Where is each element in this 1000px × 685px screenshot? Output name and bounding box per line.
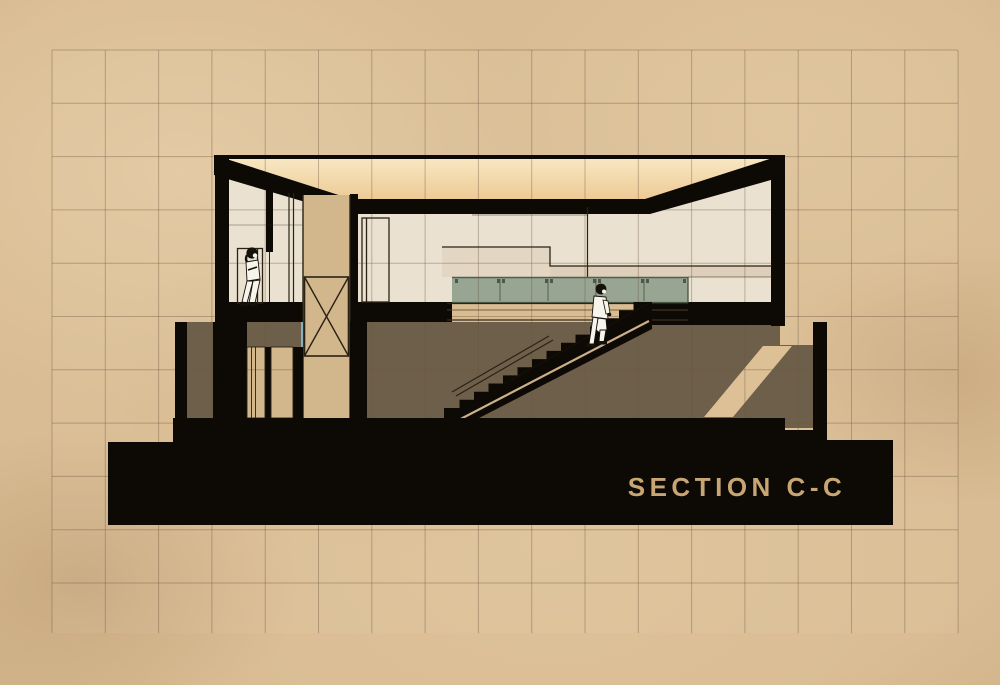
freestanding-column	[813, 322, 827, 443]
left-exterior-wall	[215, 157, 229, 322]
floor-slab-right	[640, 302, 785, 325]
section-title: SECTION C-C	[628, 472, 847, 502]
right-exterior-wall	[771, 156, 785, 326]
pilaster-1	[247, 347, 265, 418]
roof-top-line	[214, 155, 785, 159]
reception-counter	[452, 277, 688, 303]
partial-partition	[266, 185, 273, 252]
kraft-paper-canvas: SECTION C-C	[0, 0, 1000, 685]
wall-panel-upper	[442, 247, 550, 277]
partition-wall	[350, 194, 358, 302]
section-drawing: SECTION C-C	[0, 0, 1000, 685]
elevator-shaft	[302, 195, 351, 418]
pilaster-2	[271, 347, 293, 418]
wall-panel-band	[550, 266, 772, 277]
